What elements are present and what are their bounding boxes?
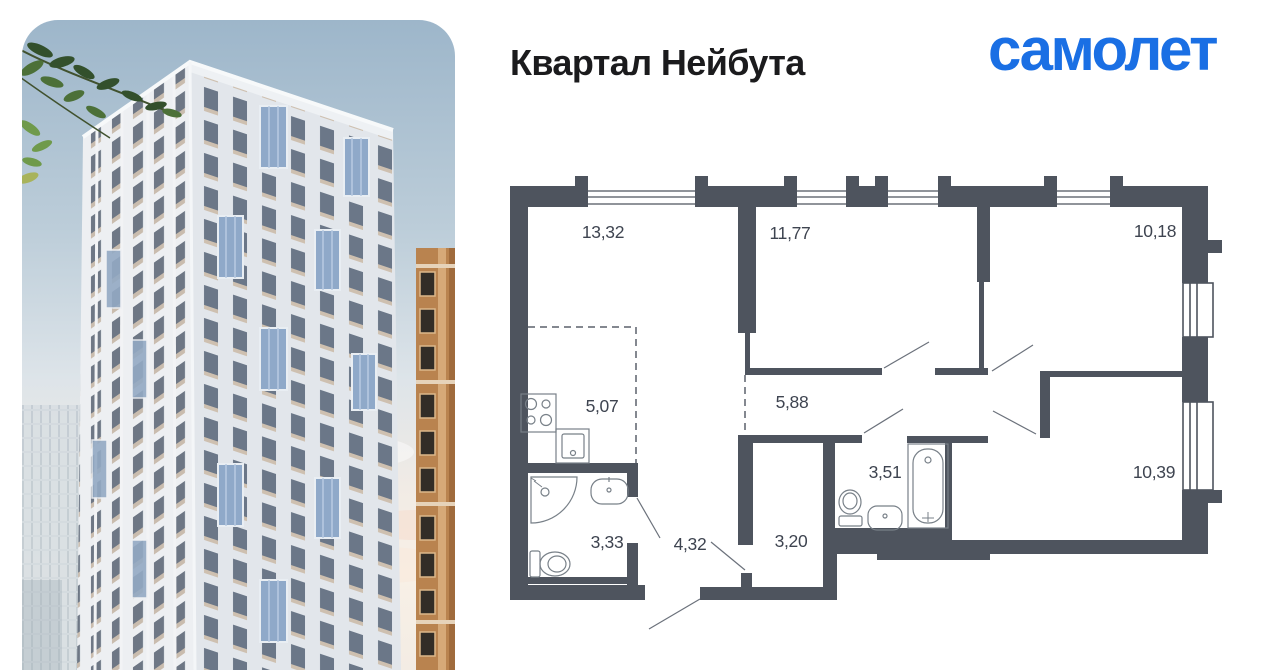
kitchen-sink-icon bbox=[556, 429, 589, 463]
accent-building bbox=[416, 248, 455, 670]
room-area-label: 10,39 bbox=[1133, 462, 1175, 482]
room-area-label: 3,51 bbox=[869, 462, 902, 482]
room-area-label: 5,07 bbox=[586, 396, 619, 416]
room-area-labels: 13,32 11,77 10,18 5,07 5,88 3,51 10,39 3… bbox=[582, 221, 1176, 554]
room-area-label: 3,33 bbox=[591, 532, 624, 552]
shower-icon bbox=[531, 477, 577, 523]
room-area-label: 4,32 bbox=[674, 534, 707, 554]
room-area-label: 10,18 bbox=[1134, 221, 1176, 241]
room-area-label: 3,20 bbox=[775, 531, 808, 551]
zone-dashed-lines bbox=[528, 327, 745, 463]
sink-icon bbox=[591, 477, 628, 504]
building-render-graphic bbox=[22, 20, 455, 670]
room-area-label: 5,88 bbox=[776, 392, 809, 412]
building-photo[interactable] bbox=[22, 20, 455, 670]
main-tower bbox=[77, 60, 405, 670]
page-title: Квартал Нейбута bbox=[510, 42, 805, 84]
listing-card: { "header": { "project_title": "Квартал … bbox=[0, 0, 1280, 670]
toilet-icon bbox=[530, 551, 570, 577]
floor-plan-graphic: 13,32 11,77 10,18 5,07 5,88 3,51 10,39 3… bbox=[500, 170, 1230, 665]
sink-2-icon bbox=[868, 506, 902, 530]
room-area-label: 13,32 bbox=[582, 222, 624, 242]
toilet-2-icon bbox=[839, 490, 862, 526]
brand-logo: самолет bbox=[988, 18, 1216, 82]
room-area-label: 11,77 bbox=[770, 223, 811, 243]
bathtub-icon bbox=[908, 444, 948, 528]
floor-plan[interactable]: 13,32 11,77 10,18 5,07 5,88 3,51 10,39 3… bbox=[500, 170, 1230, 665]
